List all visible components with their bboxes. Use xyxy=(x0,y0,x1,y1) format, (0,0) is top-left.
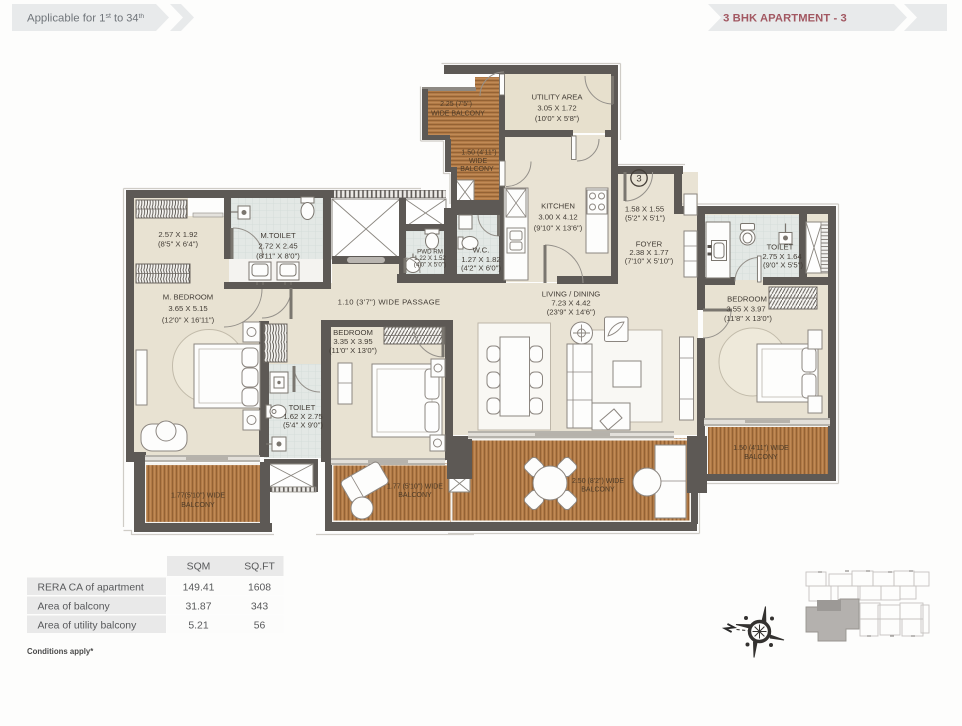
svg-text:3: 3 xyxy=(636,174,641,185)
svg-text:3.55 X 3.97: 3.55 X 3.97 xyxy=(726,305,765,314)
svg-text:7.23 X 4.42: 7.23 X 4.42 xyxy=(551,299,590,308)
svg-text:Area of balcony: Area of balcony xyxy=(38,602,111,613)
svg-text:343: 343 xyxy=(251,602,269,613)
svg-text:(11'0" X 13'0"): (11'0" X 13'0") xyxy=(329,346,377,355)
svg-text:KITCHEN: KITCHEN xyxy=(541,202,575,211)
svg-text:BALCONY: BALCONY xyxy=(181,502,215,509)
svg-text:2.25 (7'5"): 2.25 (7'5") xyxy=(440,101,472,108)
svg-text:UTILITY AREA: UTILITY AREA xyxy=(531,93,583,102)
svg-text:31.87: 31.87 xyxy=(185,602,211,613)
svg-text:149.41: 149.41 xyxy=(183,583,215,594)
svg-text:LIVING / DINING: LIVING / DINING xyxy=(542,290,601,299)
svg-text:3.35 X 3.95: 3.35 X 3.95 xyxy=(333,337,372,346)
svg-text:RERA CA of apartment: RERA CA of apartment xyxy=(38,583,144,594)
svg-text:WIDE: WIDE xyxy=(469,158,488,165)
svg-text:(4'2" X 6'0"): (4'2" X 6'0") xyxy=(461,264,501,273)
svg-text:WIDE BALCONY: WIDE BALCONY xyxy=(431,111,485,118)
svg-text:M.TOILET: M.TOILET xyxy=(260,231,296,240)
svg-text:2.57 X 1.92: 2.57 X 1.92 xyxy=(158,230,197,239)
svg-text:1.50 (4'11"): 1.50 (4'11") xyxy=(461,150,496,157)
svg-text:(5'2" X 5'1"): (5'2" X 5'1") xyxy=(625,214,665,223)
svg-text:(11'8" X 13'0"): (11'8" X 13'0") xyxy=(724,314,772,323)
svg-text:3.05 X 1.72: 3.05 X 1.72 xyxy=(537,104,576,113)
svg-text:(8'11" X 8'0"): (8'11" X 8'0") xyxy=(256,252,300,261)
svg-text:(12'0" X 16'11"): (12'0" X 16'11") xyxy=(162,316,215,325)
svg-text:(7'10" X 5'10"): (7'10" X 5'10") xyxy=(625,257,674,266)
svg-text:Area of utility balcony: Area of utility balcony xyxy=(38,621,138,632)
svg-text:1.58 X 1.55: 1.58 X 1.55 xyxy=(625,205,664,214)
svg-text:BALCONY: BALCONY xyxy=(460,166,494,173)
svg-text:1.10 (3'7") WIDE PASSAGE: 1.10 (3'7") WIDE PASSAGE xyxy=(338,298,441,307)
svg-text:3 BHK APARTMENT - 3: 3 BHK APARTMENT - 3 xyxy=(723,13,847,25)
svg-text:(23'9" X 14'6"): (23'9" X 14'6") xyxy=(547,308,596,317)
svg-text:W.C.: W.C. xyxy=(473,246,490,255)
svg-text:TOILET: TOILET xyxy=(289,403,316,412)
svg-text:TOILET: TOILET xyxy=(767,243,794,252)
svg-text:2.50 (8'2") WIDE: 2.50 (8'2") WIDE xyxy=(572,478,624,485)
svg-text:BEDROOM: BEDROOM xyxy=(727,295,767,304)
svg-text:5.21: 5.21 xyxy=(188,621,208,632)
svg-text:2.72 X 2.45: 2.72 X 2.45 xyxy=(258,242,297,251)
svg-text:(9'10" X 13'6"): (9'10" X 13'6") xyxy=(534,224,583,233)
svg-text:SQM: SQM xyxy=(187,562,211,573)
svg-text:Applicable for 1st to 34th: Applicable for 1st to 34th xyxy=(27,13,144,25)
svg-text:(4'0" X 5'0"): (4'0" X 5'0") xyxy=(414,262,446,269)
svg-text:(5'4" X 9'0"): (5'4" X 9'0") xyxy=(283,421,323,430)
svg-text:3.00 X 4.12: 3.00 X 4.12 xyxy=(538,213,577,222)
svg-text:56: 56 xyxy=(254,621,266,632)
svg-text:1608: 1608 xyxy=(248,583,271,594)
svg-text:M. BEDROOM: M. BEDROOM xyxy=(163,293,213,302)
svg-text:1.50 (4'11") WIDE: 1.50 (4'11") WIDE xyxy=(733,445,789,452)
svg-text:1.77(5'10") WIDE: 1.77(5'10") WIDE xyxy=(171,493,225,500)
svg-text:SQ.FT: SQ.FT xyxy=(244,562,275,573)
svg-text:BALCONY: BALCONY xyxy=(398,492,432,499)
svg-text:(10'0" X 5'8"): (10'0" X 5'8") xyxy=(535,114,580,123)
svg-text:1.77 (5'10") WIDE: 1.77 (5'10") WIDE xyxy=(387,484,443,491)
svg-text:(8'5" X 6'4"): (8'5" X 6'4") xyxy=(158,240,198,249)
svg-text:Conditions apply*: Conditions apply* xyxy=(27,647,94,656)
svg-text:(9'0" X 5'5"): (9'0" X 5'5") xyxy=(763,261,803,270)
svg-text:BALCONY: BALCONY xyxy=(581,487,615,494)
svg-text:3.65 X 5.15: 3.65 X 5.15 xyxy=(168,304,207,313)
svg-text:BALCONY: BALCONY xyxy=(744,454,778,461)
svg-text:BEDROOM: BEDROOM xyxy=(333,328,373,337)
